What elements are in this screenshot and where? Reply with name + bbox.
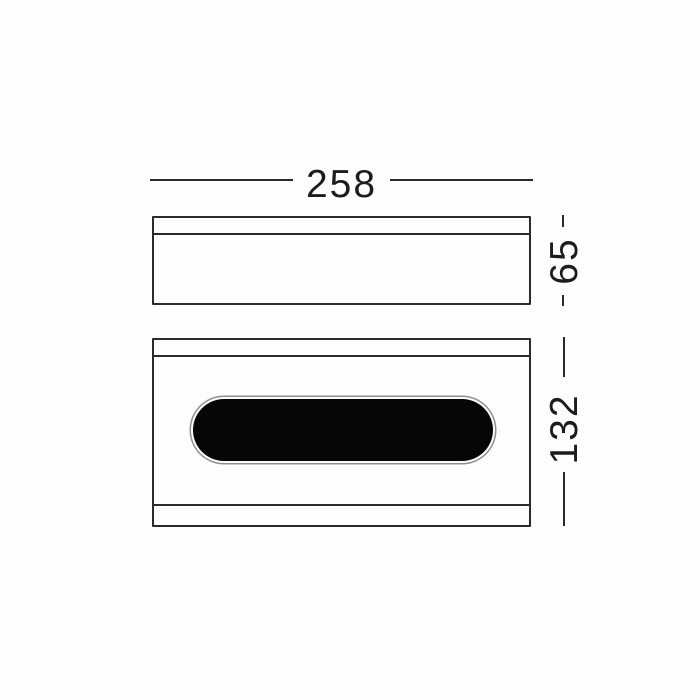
side-view-outline <box>152 216 531 305</box>
depth-dimension-label: 65 <box>544 231 584 291</box>
technical-drawing-canvas: 258 65 132 <box>0 0 700 700</box>
depth-dimension-tick-bottom <box>562 295 564 306</box>
width-dimension-line-left <box>150 179 293 181</box>
front-view-bottom-edge-line <box>152 504 531 506</box>
height-dimension-line-bottom <box>563 472 565 526</box>
height-dimension-label: 132 <box>544 384 584 474</box>
width-dimension-label: 258 <box>293 164 390 204</box>
depth-dimension-tick-top <box>562 215 564 227</box>
side-view-lid-line <box>152 233 531 235</box>
height-dimension-line-top <box>563 337 565 377</box>
width-dimension-line-right <box>390 179 533 181</box>
front-view-top-edge-line <box>152 355 531 357</box>
tissue-opening-slot <box>193 399 493 461</box>
